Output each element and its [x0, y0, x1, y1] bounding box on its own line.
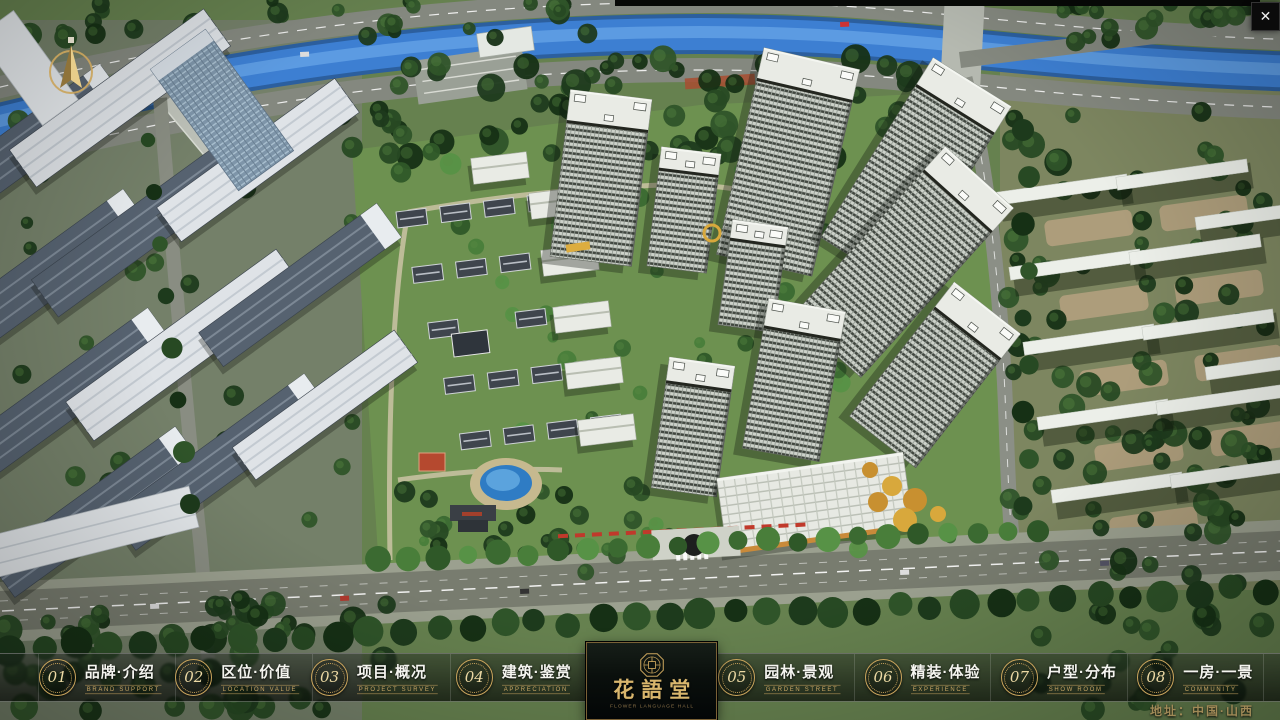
nav-number-badge: 08 — [1137, 659, 1174, 696]
nav-item-room-scene[interactable]: 08 一房·一景COMMUNITY — [1127, 654, 1264, 701]
nav-item-title: 品牌·介绍 — [85, 661, 155, 682]
masterplan-3d-view[interactable] — [0, 0, 1280, 720]
logo-seal-icon — [639, 652, 665, 678]
logo-name: 花語堂 — [606, 678, 697, 701]
nav-item-subtitle: SHOW ROOM — [1047, 684, 1104, 693]
nav-item-title: 项目·概况 — [357, 661, 427, 682]
nav-number-badge: 07 — [1001, 659, 1038, 696]
nav-item-subtitle: BRAND SUPPORT — [85, 684, 162, 693]
nav-item-title: 户型·分布 — [1047, 661, 1117, 682]
nav-bar: 01 品牌·介绍BRAND SUPPORT 02 区位·价值LOCATION V… — [0, 653, 1280, 702]
nav-item-subtitle: APPRECIATION — [502, 684, 570, 693]
close-button[interactable]: ✕ — [1251, 2, 1280, 31]
nav-item-location-value[interactable]: 02 区位·价值LOCATION VALUE — [175, 654, 313, 701]
nav-item-subtitle: EXPERIENCE — [911, 684, 970, 693]
nav-item-decoration-experience[interactable]: 06 精装·体验EXPERIENCE — [854, 654, 990, 701]
nav-number-badge: 02 — [175, 659, 212, 696]
nav-item-title: 一房·一景 — [1183, 661, 1253, 682]
nav-number-badge: 03 — [311, 659, 348, 696]
nav-number-badge: 06 — [865, 659, 902, 696]
nav-item-project-overview[interactable]: 03 项目·概况PROJECT SURVEY — [312, 654, 450, 701]
nav-item-subtitle: COMMUNITY — [1183, 684, 1238, 693]
nav-item-floorplan-distribution[interactable]: 07 户型·分布SHOW ROOM — [990, 654, 1126, 701]
nav-item-title: 区位·价值 — [221, 661, 291, 682]
project-address: 地址：中国·山西 — [1150, 702, 1254, 719]
logo-tagline: FLOWER LANGUAGE HALL — [610, 704, 694, 709]
nav-number-badge: 01 — [39, 659, 76, 696]
project-logo-panel[interactable]: 花語堂 FLOWER LANGUAGE HALL — [586, 642, 717, 720]
nav-item-title: 园林·景观 — [764, 661, 834, 682]
nav-number-badge: 05 — [718, 659, 755, 696]
nav-item-subtitle: GARDEN STREET — [764, 684, 840, 693]
nav-item-subtitle: PROJECT SURVEY — [357, 684, 438, 693]
nav-spacer-left — [0, 654, 38, 701]
compass-north-icon — [42, 34, 100, 104]
nav-item-garden-landscape[interactable]: 05 园林·景观GARDEN STREET — [717, 654, 854, 701]
nav-item-title: 建筑·鉴赏 — [502, 661, 572, 682]
nav-item-architecture[interactable]: 04 建筑·鉴赏APPRECIATION — [450, 654, 586, 701]
presentation-stage: ✕ 01 品牌·介绍BRAND SUPPORT 02 区位·价值LOCATION… — [0, 0, 1280, 720]
nav-item-title: 精装·体验 — [911, 661, 981, 682]
nav-spacer-right — [1264, 654, 1280, 701]
close-icon: ✕ — [1260, 8, 1272, 25]
nav-number-badge: 04 — [456, 659, 493, 696]
nav-item-brand-intro[interactable]: 01 品牌·介绍BRAND SUPPORT — [38, 654, 175, 701]
nav-item-subtitle: LOCATION VALUE — [221, 684, 299, 693]
